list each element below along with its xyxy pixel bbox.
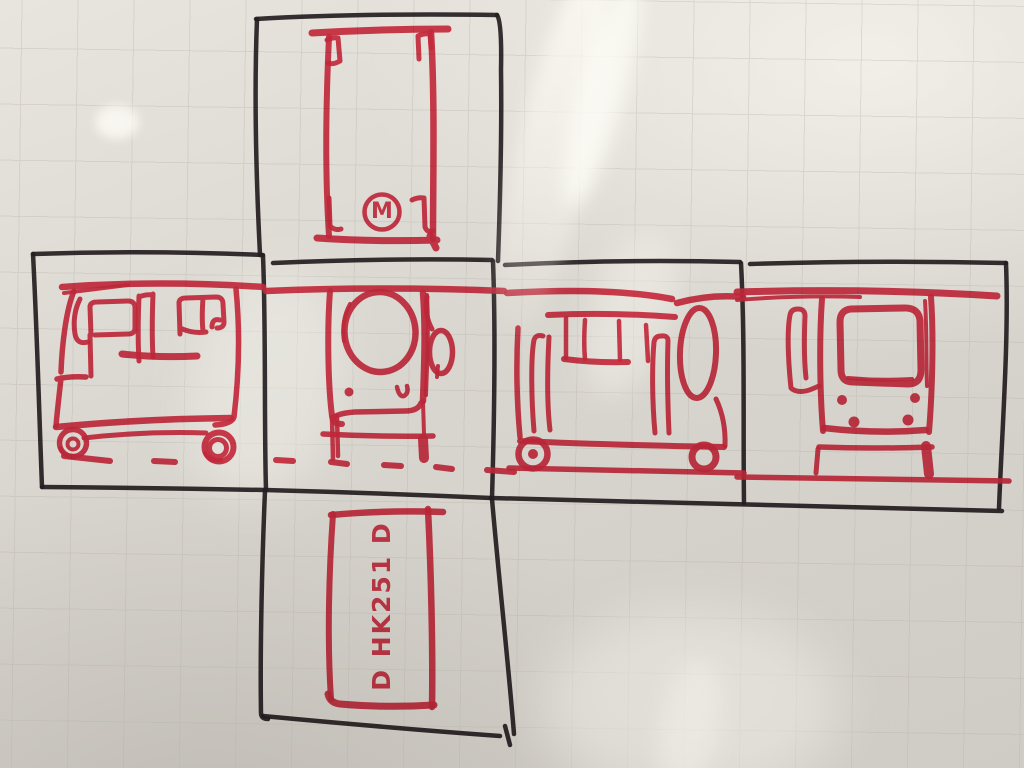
- taillight: [837, 395, 847, 405]
- taillight: [849, 417, 860, 428]
- license-plate-text: D HK251 D: [367, 521, 397, 691]
- bumper: [819, 447, 932, 448]
- ground-dashes: [276, 460, 514, 472]
- rear-window: [840, 308, 921, 384]
- taillight: [903, 415, 914, 426]
- marker-drawing: [0, 0, 1024, 768]
- bus-rear-view: [737, 291, 1009, 481]
- m-logo-text: M: [364, 197, 400, 227]
- bus-right-side-view: [507, 291, 744, 473]
- windshield: [342, 290, 418, 375]
- door: [653, 336, 669, 433]
- windshield: [678, 307, 717, 398]
- side-mirror: [788, 309, 819, 392]
- bus-front-view: [266, 289, 504, 460]
- bus-left-side-view: [56, 284, 263, 463]
- headlight-left: [345, 388, 354, 397]
- whiteboard: M D HK251 D: [0, 0, 1024, 768]
- headlight-right: [397, 386, 408, 396]
- taillight: [910, 393, 920, 403]
